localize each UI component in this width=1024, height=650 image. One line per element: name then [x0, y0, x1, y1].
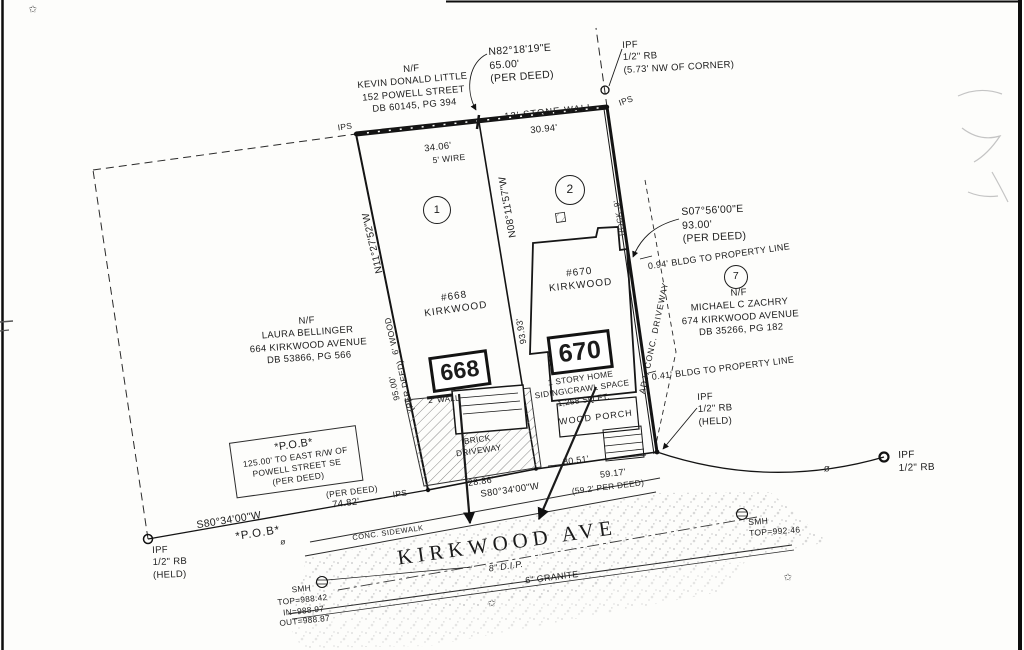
phi-mark: ø [824, 463, 830, 476]
lot-circle-1: 1 [423, 196, 451, 224]
ipf-label-se: IPF 1/2" RB (HELD) [697, 390, 733, 429]
pencil-scribbles [958, 90, 1008, 202]
ips-point [354, 132, 358, 136]
owner-block-zachry: N/F MICHAEL C ZACHRY 674 KIRKWOOD AVENUE… [680, 283, 801, 340]
owner-block-bellinger: N/F LAURA BELLINGER 664 KIRKWOOD AVENUE … [248, 311, 369, 368]
bearing-north-line: N82°18'19"E 65.00' (PER DEED) [488, 42, 554, 87]
rw-line-east [657, 452, 884, 472]
lot-circle-7: 7 [724, 265, 748, 289]
smh-label-west: SMH TOP=988.42 IN=988.97 OUT=988.87 [276, 581, 331, 629]
smh-label-east: SMH TOP=992.46 [748, 513, 801, 539]
ips-label-topleft: IPS [337, 121, 353, 134]
house-number-box-670: 670 [547, 329, 614, 375]
ips-point [426, 488, 430, 492]
phi-mark: ø [280, 536, 286, 547]
street-area [288, 478, 828, 648]
ipf-label-east: IPF 1/2" RB [898, 448, 935, 475]
ipf-corner-point [655, 450, 660, 455]
ipf-label-nw: IPF 1/2" RB (5.73' NW OF CORNER) [622, 34, 735, 77]
owner-block-little: N/F KEVIN DONALD LITTLE 152 POWELL STREE… [356, 59, 470, 118]
lot-circle-2: 2 [555, 175, 585, 205]
ips-point [605, 105, 609, 109]
bearing-east-line: S07°56'00"E 93.00' (PER DEED) [681, 203, 747, 247]
survey-plat-page: N/F KEVIN DONALD LITTLE 152 POWELL STREE… [0, 0, 1024, 650]
meter-symbol [555, 212, 565, 222]
star-mark: ✩ [29, 4, 38, 17]
ipf-label-sw: IPF 1/2" RB (HELD) [152, 544, 188, 582]
star-mark: ✩ [784, 572, 793, 585]
star-mark: ✩ [488, 598, 497, 611]
ips-label-front: IPS [392, 488, 408, 501]
